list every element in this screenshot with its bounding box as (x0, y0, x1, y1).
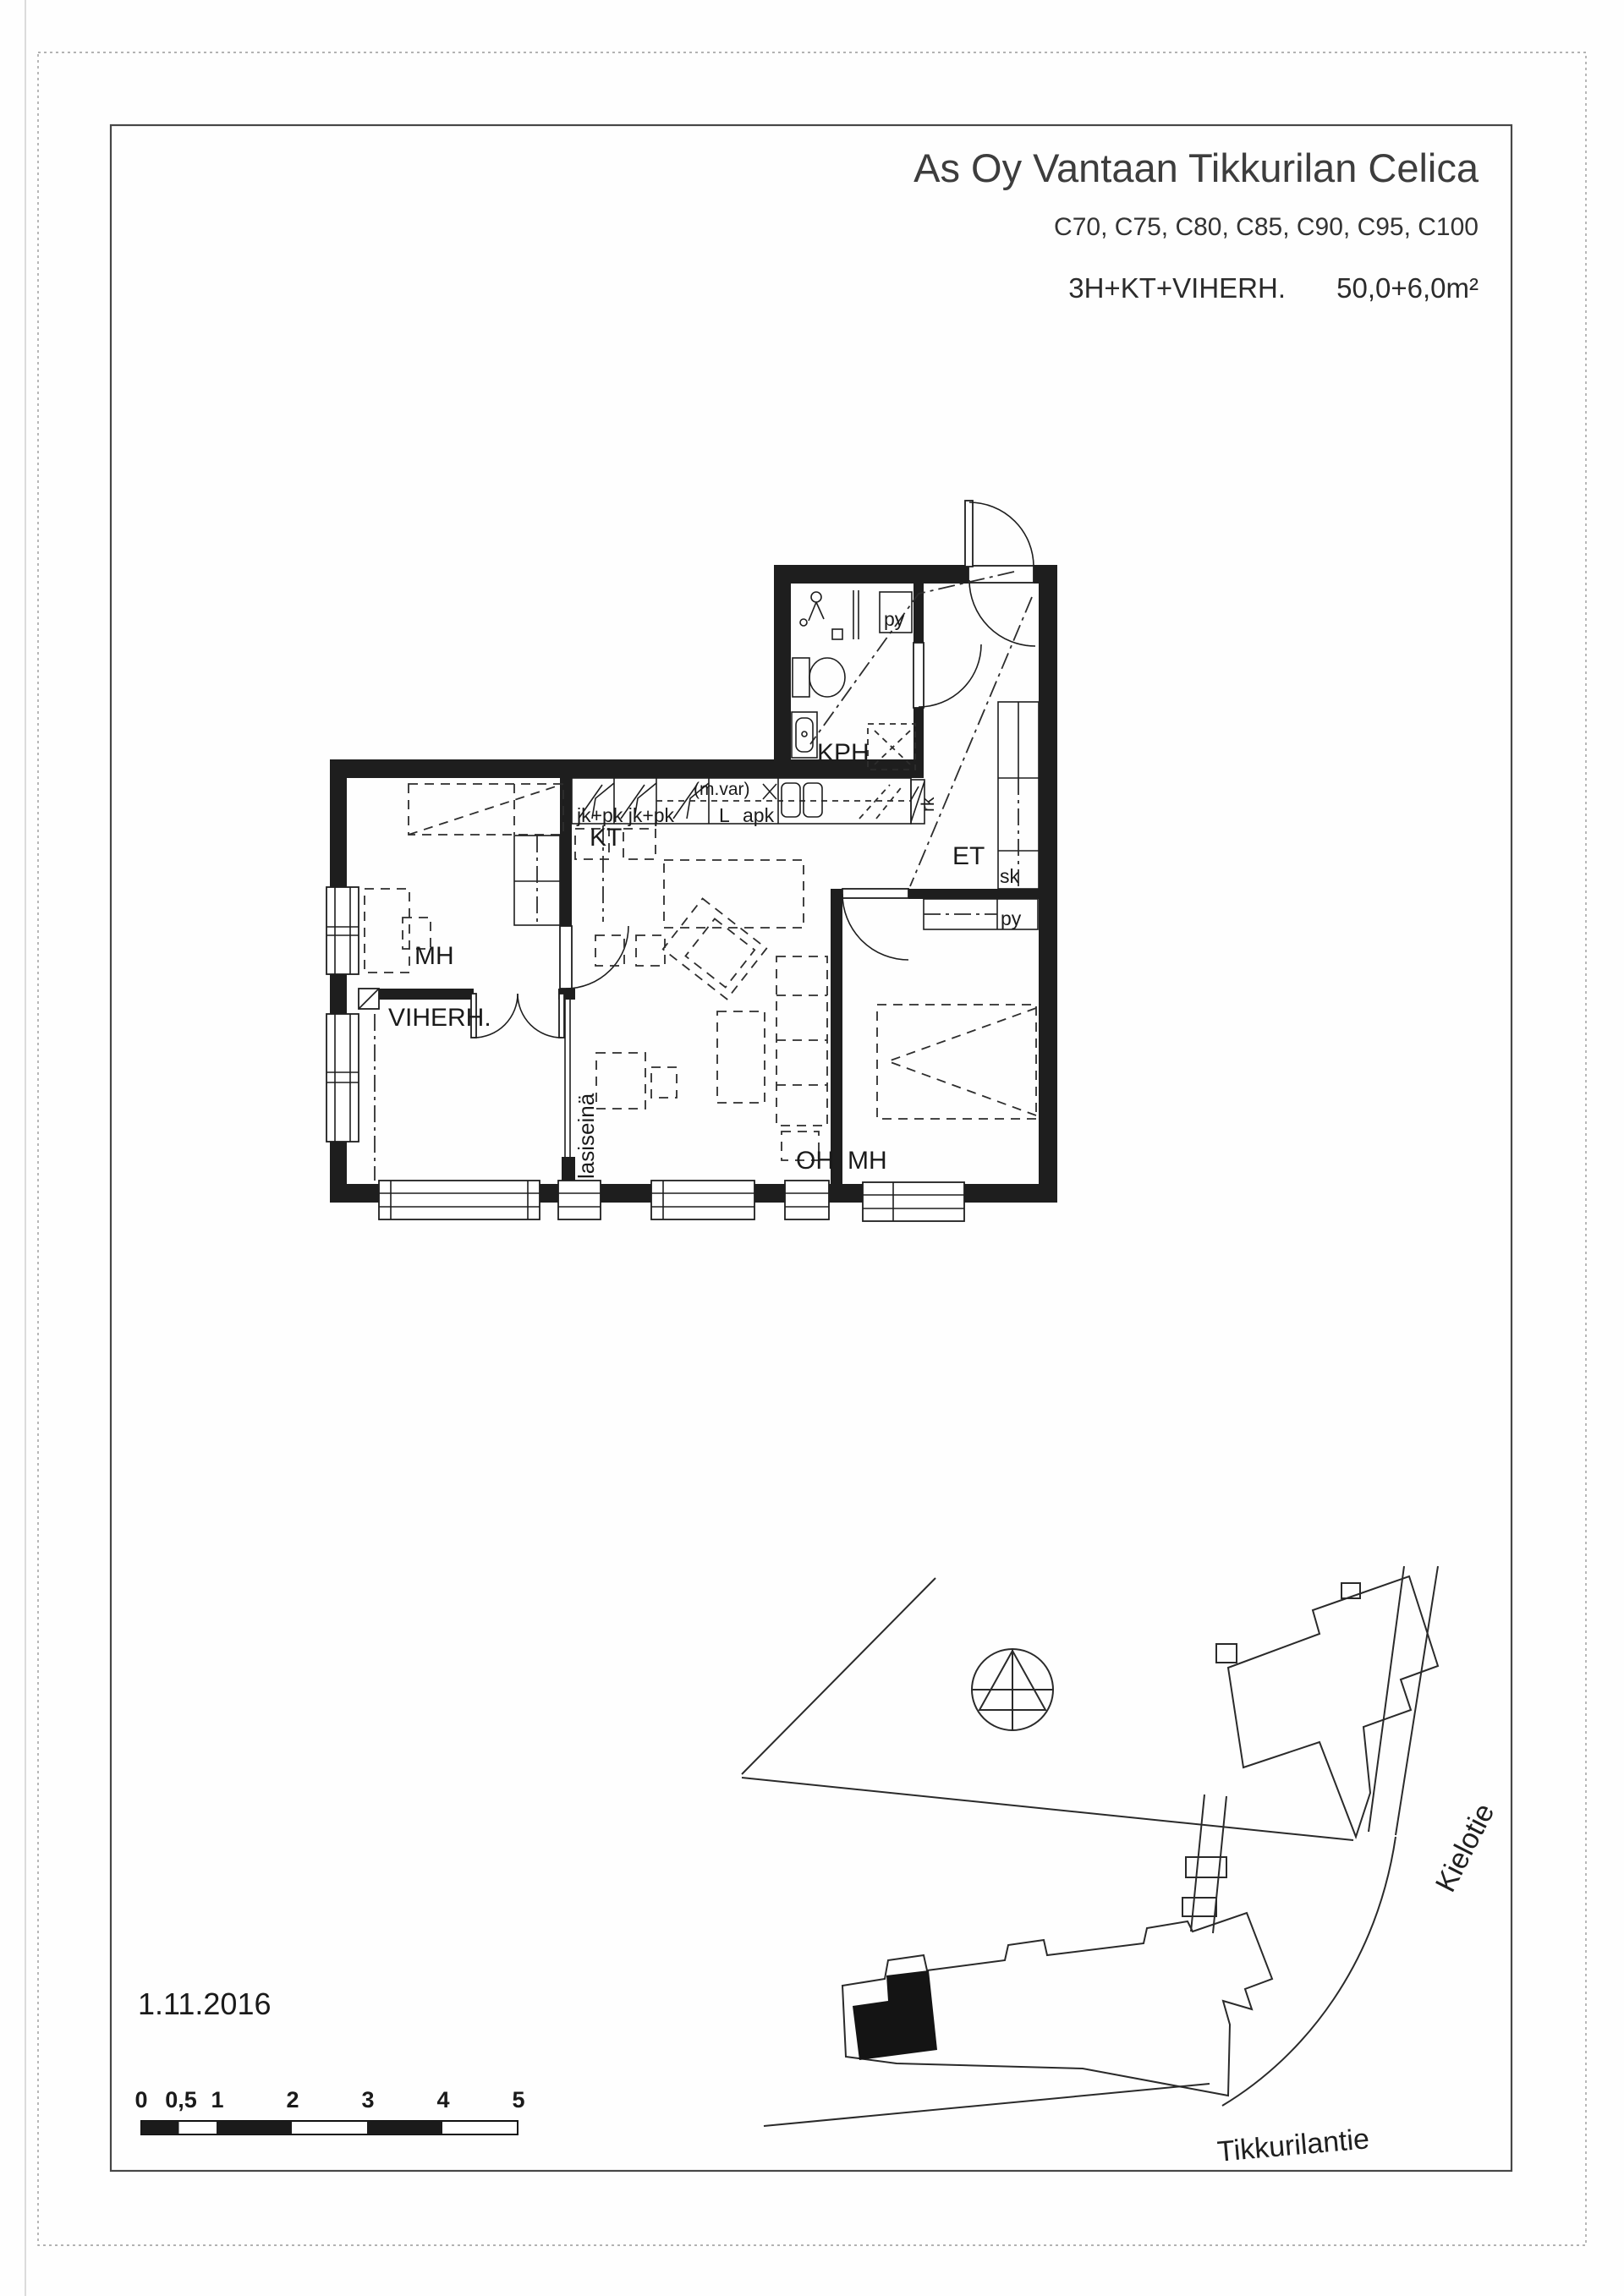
glass-wall (565, 1000, 570, 1157)
property-line-1 (742, 1578, 935, 1774)
scale-tick-05: 0,5 (165, 2087, 197, 2112)
kitchen-chair-3 (595, 935, 624, 966)
street-tikkurilantie-line (764, 2084, 1210, 2126)
label-py-bath: py (884, 608, 905, 630)
armchair (663, 899, 766, 1000)
label-rk: rk (919, 797, 938, 812)
label-dishwasher: apk (743, 804, 775, 826)
room-label-et: ET (952, 842, 985, 870)
bedroom-right-door (842, 889, 908, 960)
sofa (776, 956, 827, 1126)
small-table (596, 1053, 645, 1109)
scanned-floorplan-page: As Oy Vantaan Tikkurilan Celica C70, C75… (0, 0, 1624, 2296)
room-label-viherh: VIHERH. (388, 1004, 491, 1032)
label-glass-wall: lasiseinä (573, 1093, 599, 1179)
walls (330, 565, 1057, 1203)
bedroom-right-furniture (877, 899, 1038, 1119)
label-sk: sk (1000, 865, 1020, 887)
scale-tick-1: 1 (211, 2087, 223, 2112)
drawing-date: 1.11.2016 (138, 1986, 271, 2021)
sink-icon (792, 712, 817, 758)
scale-tick-2: 2 (286, 2087, 299, 2112)
scale-tick-3: 3 (361, 2087, 374, 2112)
wardrobe-left (514, 836, 560, 925)
room-label-oh: OH (796, 1147, 834, 1175)
floor-plan: KPH KT ET MH VIHERH. OH MH py py sk rk j… (326, 501, 1057, 1221)
scale-tick-5: 5 (512, 2087, 524, 2112)
reservation-hatch (859, 785, 890, 819)
window-small-1 (558, 1181, 601, 1219)
kitchen-chair-2 (623, 829, 656, 859)
bottom-windows (379, 1181, 964, 1221)
scale-bar: 0 0,5 1 2 3 4 5 (134, 2087, 524, 2134)
label-reservation: (m.var) (694, 780, 750, 799)
floorplan-drawing: As Oy Vantaan Tikkurilan Celica C70, C75… (0, 0, 1624, 2296)
label-fridges: jk+pk jk+pk (576, 804, 675, 826)
kitchen-chair-4 (636, 935, 665, 966)
apartment-type: 3H+KT+VIHERH. (1068, 272, 1286, 304)
title-block: As Oy Vantaan Tikkurilan Celica C70, C75… (913, 145, 1479, 304)
subject-building (842, 1913, 1272, 2096)
page-title: As Oy Vantaan Tikkurilan Celica (913, 145, 1479, 190)
bedroom-left-furniture (365, 784, 563, 973)
dining-table (664, 860, 804, 928)
neighbor-building (1216, 1576, 1438, 1837)
coffee-table (717, 1011, 765, 1103)
window-oh-bottom (651, 1181, 754, 1219)
label-py-bedroom: py (1001, 907, 1022, 929)
corner-window-symbol (359, 989, 379, 1009)
window-small-2 (785, 1181, 829, 1219)
room-label-kph: KPH (817, 739, 870, 767)
toilet-icon (793, 658, 845, 697)
window-viherh-bottom (379, 1181, 540, 1219)
room-label-mh-right: MH (848, 1147, 887, 1175)
hall-closet (998, 702, 1039, 889)
bed-right (877, 1005, 1036, 1119)
apartment-area: 50,0+6,0m² (1336, 272, 1479, 304)
small-chair (651, 1067, 677, 1098)
kitchen-oh-furniture (575, 825, 827, 1160)
bathroom-door (913, 643, 981, 708)
window-mh-bottom (863, 1182, 964, 1221)
tree-symbol (972, 1649, 1053, 1730)
room-label-kt: KT (590, 824, 622, 852)
connector-corridor (1182, 1795, 1226, 1933)
scale-tick-4: 4 (436, 2087, 449, 2112)
street-label-tikkurilantie: Tikkurilantie (1216, 2123, 1371, 2168)
shower-head-icon (811, 592, 821, 602)
scale-tick-0: 0 (134, 2087, 147, 2112)
window-mh-left (326, 887, 359, 974)
site-plan: Kielotie Tikkurilantie (742, 1566, 1501, 2168)
room-label-mh-left: MH (414, 942, 454, 970)
unit-list: C70, C75, C80, C85, C90, C95, C100 (1054, 213, 1479, 241)
window-viherh-left (326, 1014, 359, 1142)
street-kielotie-lines (1222, 1566, 1438, 2106)
unit-location-marker (853, 1970, 937, 2060)
property-line-2 (742, 1778, 1353, 1840)
road-corner-curve (1222, 1837, 1396, 2106)
entrance-door (965, 501, 1035, 646)
street-label-kielotie: Kielotie (1429, 1799, 1501, 1898)
floor-drain-icon (832, 629, 842, 639)
label-stove: L (719, 804, 730, 826)
